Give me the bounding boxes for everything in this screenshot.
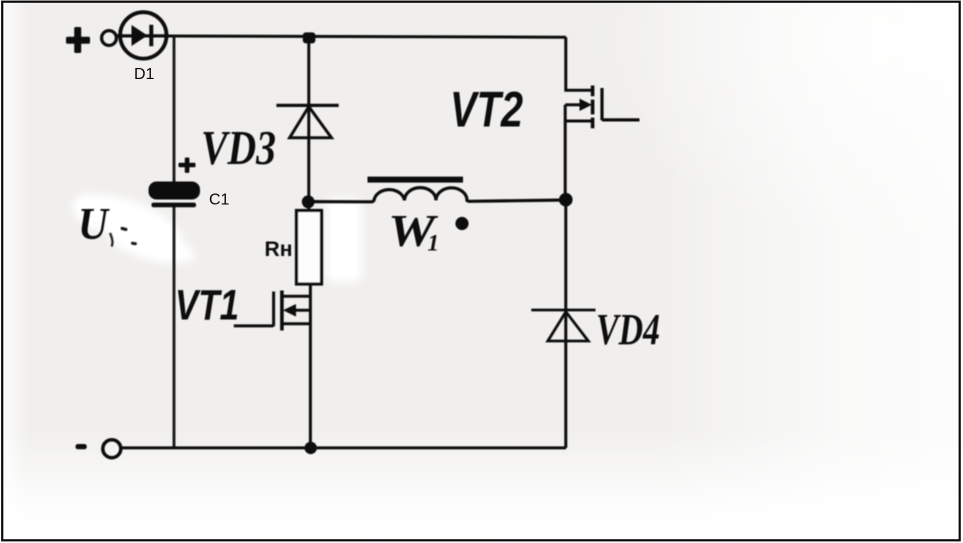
svg-text:Rн: Rн [265, 238, 293, 261]
svg-text:1: 1 [428, 231, 440, 256]
svg-text:C1: C1 [209, 192, 230, 209]
svg-text:U: U [78, 199, 110, 249]
svg-text:D1: D1 [134, 66, 155, 83]
svg-text:VT2: VT2 [450, 82, 523, 138]
svg-text:VT1: VT1 [175, 282, 239, 330]
svg-text:VD4: VD4 [596, 305, 660, 354]
svg-text:VD3: VD3 [201, 120, 276, 175]
